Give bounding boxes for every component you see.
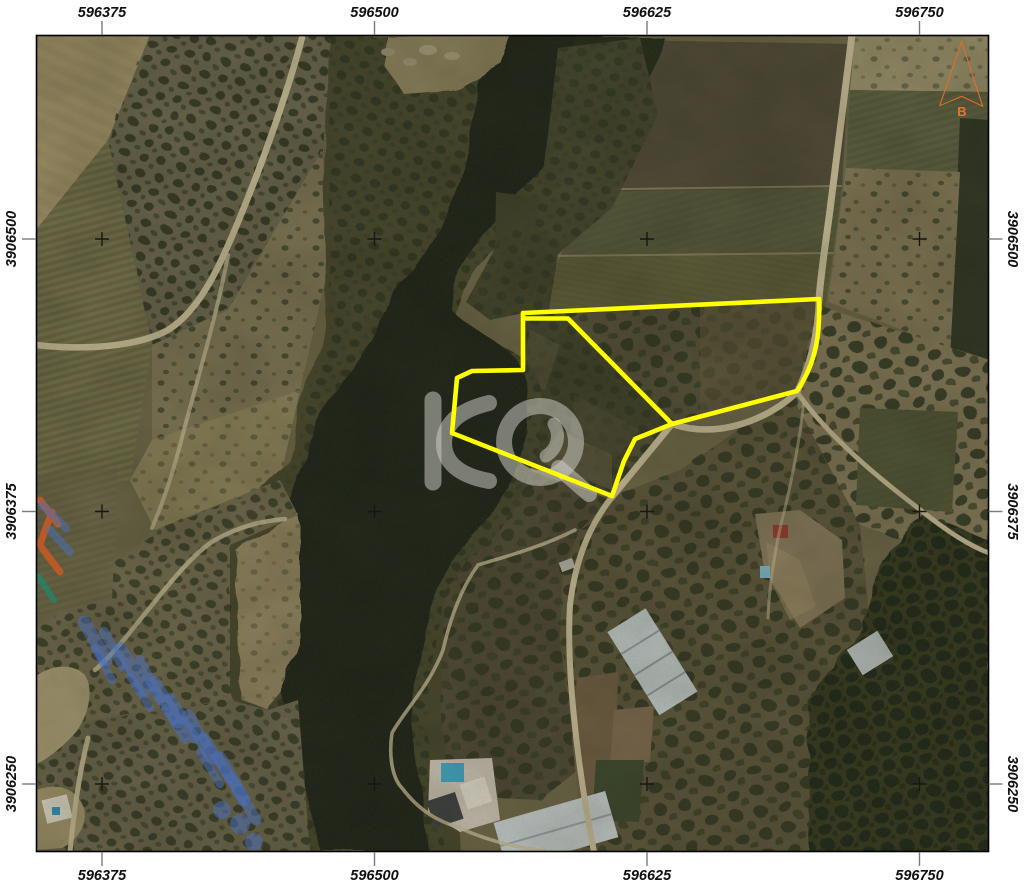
svg-text:3906250: 3906250 — [1004, 756, 1020, 812]
svg-text:3906250: 3906250 — [4, 756, 20, 812]
svg-text:596375: 596375 — [78, 868, 127, 884]
svg-text:B: B — [957, 104, 966, 119]
svg-text:596750: 596750 — [895, 868, 943, 884]
svg-text:3906500: 3906500 — [4, 211, 20, 267]
svg-text:596500: 596500 — [350, 5, 398, 21]
svg-text:596625: 596625 — [623, 5, 672, 21]
svg-text:3906375: 3906375 — [4, 482, 20, 539]
svg-text:596375: 596375 — [78, 5, 127, 21]
svg-text:596625: 596625 — [623, 868, 672, 884]
svg-text:3906500: 3906500 — [1004, 211, 1020, 267]
svg-text:596750: 596750 — [895, 5, 943, 21]
svg-text:596500: 596500 — [350, 868, 398, 884]
svg-text:3906375: 3906375 — [1004, 483, 1020, 540]
